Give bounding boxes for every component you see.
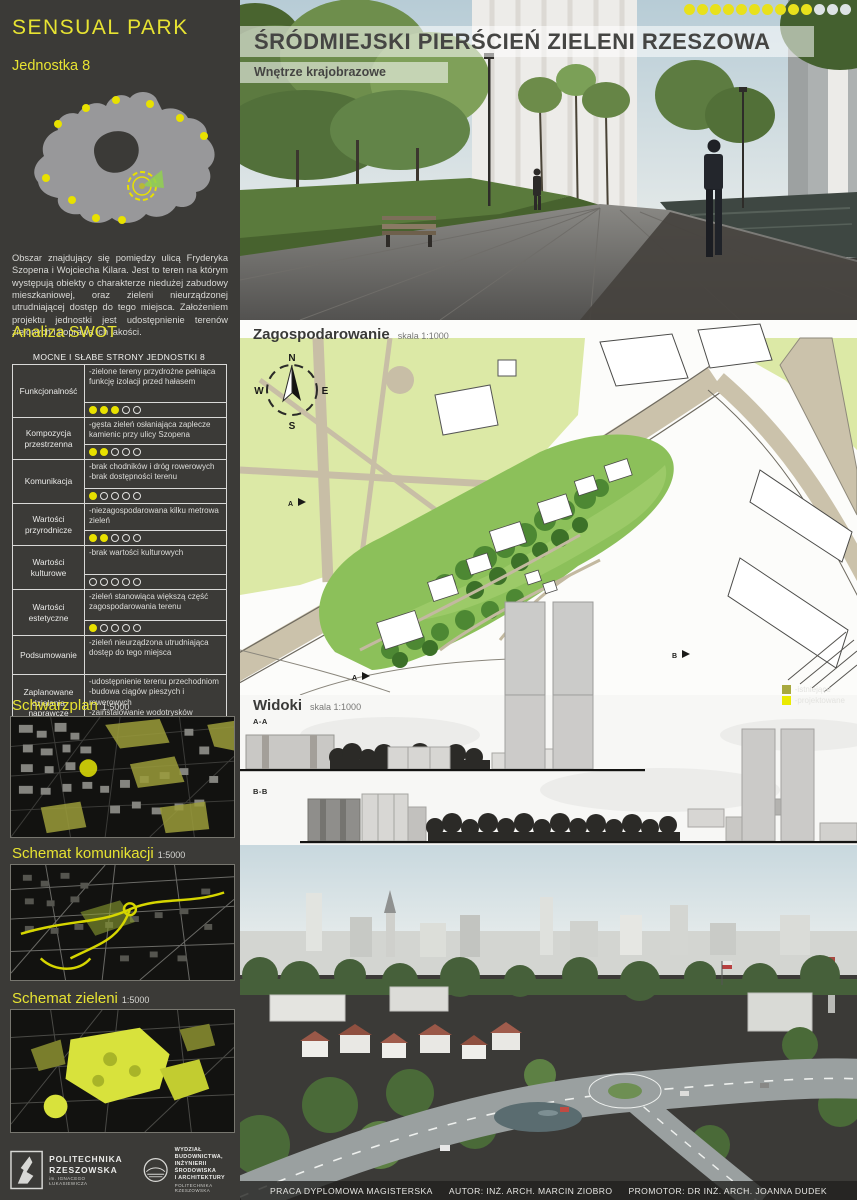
university-name: POLITECHNIKA RZESZOWSKA [49,1154,123,1174]
swot-row-label: Podsumowanie [13,636,85,674]
swot-rating [85,488,226,503]
legend-swatch [782,685,791,694]
swot-row-content: -zieleń stanowiąca większą część zagospo… [85,590,226,635]
footer-project: PRACA DYPLOMOWA MAGISTERSKA [270,1186,433,1196]
swot-rating [85,402,226,417]
swot-row-content: -gęsta zieleń osłaniająca zaplecze kamie… [85,418,226,459]
projected-yellow-feature [79,759,97,777]
swot-row: Wartości przyrodnicze -niezagospodarowan… [13,504,226,546]
views-scale: skala 1:1000 [310,702,361,712]
elevation-drawings [240,695,857,845]
rating-dot [111,492,119,500]
swot-row-label: Funkcjonalność [13,365,85,417]
komunikacja-map [10,864,235,981]
zielen-title: Schemat zieleni [12,990,118,1007]
swot-row-label: Wartości estetyczne [13,590,85,635]
footer-credit-bar: PRACA DYPLOMOWA MAGISTERSKA AUTOR: INŻ. … [240,1181,857,1200]
page-dot [684,4,695,15]
swot-row-text: -zieleń nieurządzona utrudniająca dostęp… [85,636,226,674]
rating-dot [100,534,108,542]
rating-dot [89,448,97,456]
views-title: Widoki [253,697,302,714]
university-subname: im. IGNACEGO ŁUKASIEWICZA [49,1176,123,1186]
page-dot [840,4,851,15]
faculty-subname: POLITECHNIKA RZESZOWSKA [175,1183,238,1193]
zielen-heading: Schemat zieleni1:5000 [12,990,149,1007]
faculty-name: WYDZIAŁ BUDOWNICTWA, INŻYNIERII ŚRODOWIS… [175,1147,238,1181]
rating-dot [100,448,108,456]
legend-swatch [782,696,791,705]
swot-row: Wartości kulturowe -brak wartości kultur… [13,546,226,590]
rating-dot [122,624,130,632]
swot-row-text: -zielone tereny przydrożne pełniąca funk… [85,365,226,402]
swot-row: Komunikacja -brak chodników i dróg rower… [13,460,226,504]
swot-heading: Analiza SWOT [12,324,117,342]
swot-row-content: -niezagospodarowana kilku metrowa zieleń [85,504,226,545]
rating-dot [133,492,141,500]
faculty-logo-icon [143,1155,168,1185]
page-dot [710,4,721,15]
rating-dot [122,406,130,414]
svg-text:A: A [352,675,357,682]
swot-row: Wartości estetyczne -zieleń stanowiąca w… [13,590,226,636]
footer-promoter: PROMOTOR: DR INŻ. ARCH. JOANNA DUDEK [628,1186,827,1196]
legend-label: -projektowane [795,696,845,705]
swot-rating [85,574,226,589]
rating-dot [100,406,108,414]
rating-dot [111,406,119,414]
compass-s: S [289,421,296,430]
rating-dot [111,624,119,632]
university-logo-icon [10,1150,43,1190]
footer-author: AUTOR: INŻ. ARCH. MARCIN ZIOBRO [449,1186,613,1196]
legend-label: -istniejące [795,685,831,694]
institution-logos: POLITECHNIKA RZESZOWSKA im. IGNACEGO ŁUK… [10,1146,238,1194]
schwarzplan-scale: 1:5000 [102,702,130,712]
rating-dot [89,534,97,542]
rating-dot [111,578,119,586]
pagination-dots [684,4,851,15]
rating-dot [133,448,141,456]
rating-dot [133,406,141,414]
swot-rating [85,620,226,635]
swot-row-text: -brak chodników i dróg rowerowych -brak … [85,460,226,488]
page-dot [723,4,734,15]
komunikacja-title: Schemat komunikacji [12,845,154,862]
schwarzplan-heading: Schwarzplan1:5000 [12,697,129,714]
map-legend: -istniejące-projektowane [782,685,845,705]
compass-e: E [322,386,329,397]
swot-row: Podsumowanie -zieleń nieurządzona utrudn… [13,636,226,675]
rating-dot [89,406,97,414]
rating-dot [122,448,130,456]
main-title: ŚRÓDMIEJSKI PIERŚCIEŃ ZIELENI RZESZOWA [240,26,814,57]
svg-text:A: A [288,501,293,508]
schwarzplan-map [10,716,235,838]
project-title: SENSUAL PARK [12,16,189,40]
section-label-aa: A-A [253,717,268,726]
zielen-scale: 1:5000 [122,995,150,1005]
swot-row-label: Kompozycja przestrzenna [13,418,85,459]
page-dot [736,4,747,15]
swot-row-text: -gęsta zieleń osłaniająca zaplecze kamie… [85,418,226,444]
red-roof-houses [300,1022,522,1059]
rating-dot [133,534,141,542]
swot-row: Kompozycja przestrzenna -gęsta zieleń os… [13,418,226,460]
swot-rating [85,530,226,545]
swot-row-text: -niezagospodarowana kilku metrowa zieleń [85,504,226,530]
swot-row-label: Wartości przyrodnicze [13,504,85,545]
plan-scale: skala 1:1000 [398,331,449,341]
rating-dot [100,492,108,500]
rating-dot [100,624,108,632]
schwarzplan-title: Schwarzplan [12,697,98,714]
swot-rating [85,444,226,459]
swot-row-text: -zieleń stanowiąca większą część zagospo… [85,590,226,620]
komunikacja-heading: Schemat komunikacji1:5000 [12,845,185,862]
swot-row-text: -brak wartości kulturowych [85,546,226,574]
rating-dot [122,578,130,586]
rating-dot [89,624,97,632]
city-ring-shape [34,92,214,223]
section-label-bb: B-B [253,787,268,796]
university-logo-unit: POLITECHNIKA RZESZOWSKA im. IGNACEGO ŁUK… [10,1150,123,1190]
rating-dot [111,534,119,542]
faculty-logo-unit: WYDZIAŁ BUDOWNICTWA, INŻYNIERII ŚRODOWIS… [143,1147,238,1192]
swot-row-label: Wartości kulturowe [13,546,85,589]
swot-row-content: -zielone tereny przydrożne pełniąca funk… [85,365,226,417]
rating-dot [111,448,119,456]
views-header: Widokiskala 1:1000 [253,697,361,714]
presentation-board: ŚRÓDMIEJSKI PIERŚCIEŃ ZIELENI RZESZOWA W… [0,0,857,1200]
rating-dot [133,624,141,632]
svg-text:B: B [672,653,677,660]
rating-dot [89,578,97,586]
page-dot [697,4,708,15]
rating-dot [133,578,141,586]
aerial-photo [240,845,857,1200]
site-plan-section: A A B Zagospodarowanieskala 1:1000 N E S… [240,320,857,695]
swot-table-title: MOCNE I SŁABE STRONY JEDNOSTKI 8 [12,352,226,362]
pond [494,1102,582,1132]
compass-n: N [288,353,295,364]
swot-row-content: -brak chodników i dróg rowerowych -brak … [85,460,226,503]
rating-dot [89,492,97,500]
compass-w: W [254,386,264,397]
swot-row-label: Komunikacja [13,460,85,503]
page-dot [788,4,799,15]
legend-item: -istniejące [782,685,831,694]
legend-item: -projektowane [782,696,845,705]
rating-dot [122,492,130,500]
page-dot [801,4,812,15]
swot-row-content: -brak wartości kulturowych [85,546,226,589]
swot-table: Funkcjonalność -zielone tereny przydrożn… [12,364,227,732]
compass-rose: N E S W [252,350,332,430]
unit-subtitle: Jednostka 8 [12,58,90,74]
plan-title: Zagospodarowanie [253,326,390,343]
views-section: Widokiskala 1:1000 A-A B-B [240,695,857,845]
page-dot [762,4,773,15]
rating-dot [100,578,108,586]
site-plan-drawing: A A B [240,320,857,695]
page-dot [814,4,825,15]
main-subtitle: Wnętrze krajobrazowe [240,62,448,83]
city-locator-map [10,84,235,242]
page-dot [775,4,786,15]
page-dot [827,4,838,15]
swot-row-content: -zieleń nieurządzona utrudniająca dostęp… [85,636,226,674]
page-dot [749,4,760,15]
swot-row: Funkcjonalność -zielone tereny przydrożn… [13,365,226,418]
komunikacja-scale: 1:5000 [158,850,186,860]
rating-dot [122,534,130,542]
zielen-map [10,1009,235,1133]
plan-header: Zagospodarowanieskala 1:1000 [253,326,449,343]
